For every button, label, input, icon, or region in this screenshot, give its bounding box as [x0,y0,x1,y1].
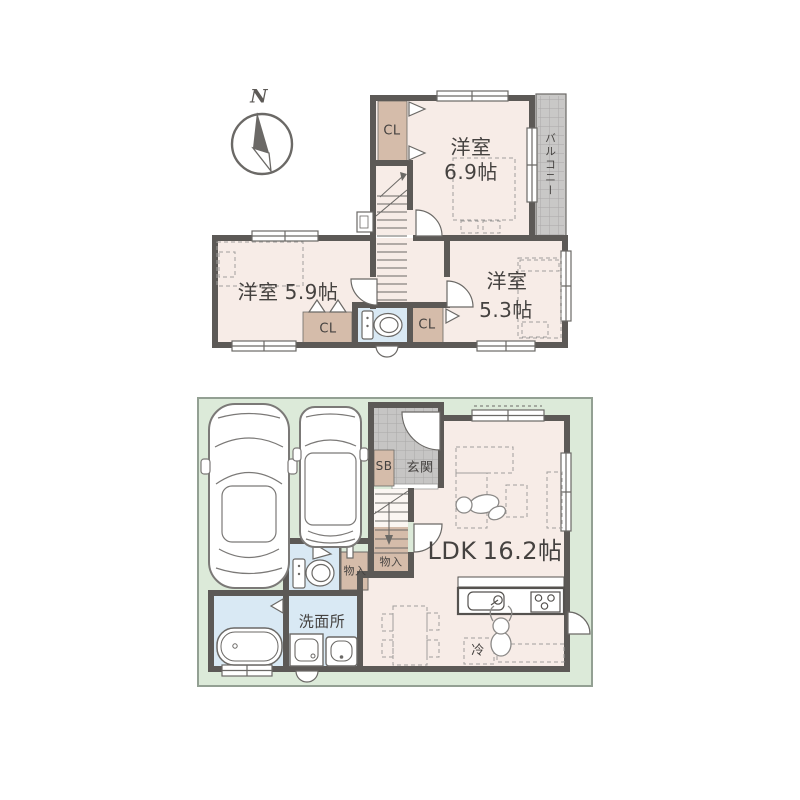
room-53-size: 5.3帖 [479,300,533,320]
bathtub-icon [217,628,282,665]
entrance-label: 玄関 [406,462,433,475]
room-69-size: 6.9帖 [444,162,498,182]
compass-needle-dark [253,112,269,153]
room-59-size: 5.9帖 [285,282,339,302]
ldk-name: LDK [427,539,476,563]
floor-plan-drawing [0,0,800,800]
compass [232,112,292,174]
refrigerator-label: 冷 [471,645,485,658]
vanity-icon [326,637,357,666]
balcony-label: バルコニー [545,133,556,198]
toilet-icon-2f [362,311,402,339]
ldk-size: 16.2帖 [483,539,563,563]
storage-hall-label: 物入 [344,566,367,577]
stair-window [357,212,373,232]
closet-53-label: CL [418,319,435,332]
floor-plan-canvas: N CL 洋室 6.9帖 バルコニー 洋室5.9帖 CL CL 洋室 5.3帖 … [0,0,800,800]
washer-pan-icon [290,634,323,666]
room-59-label: 洋室5.9帖 [238,282,339,302]
room-69-name: 洋室 [451,137,492,157]
car-large [201,404,297,588]
north-label: N [250,88,268,107]
ldk-label: LDK16.2帖 [427,539,562,563]
room-53-name: 洋室 [487,271,528,291]
casement-window-toilet [376,346,398,357]
kitchen-sink-icon [468,592,504,610]
closet-upper-label: CL [383,125,400,138]
room-59-name: 洋室 [238,282,279,302]
car-small [293,407,368,547]
closet-59-label: CL [319,323,336,336]
stove-icon [531,592,560,612]
shoebox-label: SB [376,460,393,472]
washroom-label: 洗面所 [299,615,346,630]
storage-under-stairs-label: 物入 [380,557,403,568]
toilet-icon-1f [293,559,334,588]
